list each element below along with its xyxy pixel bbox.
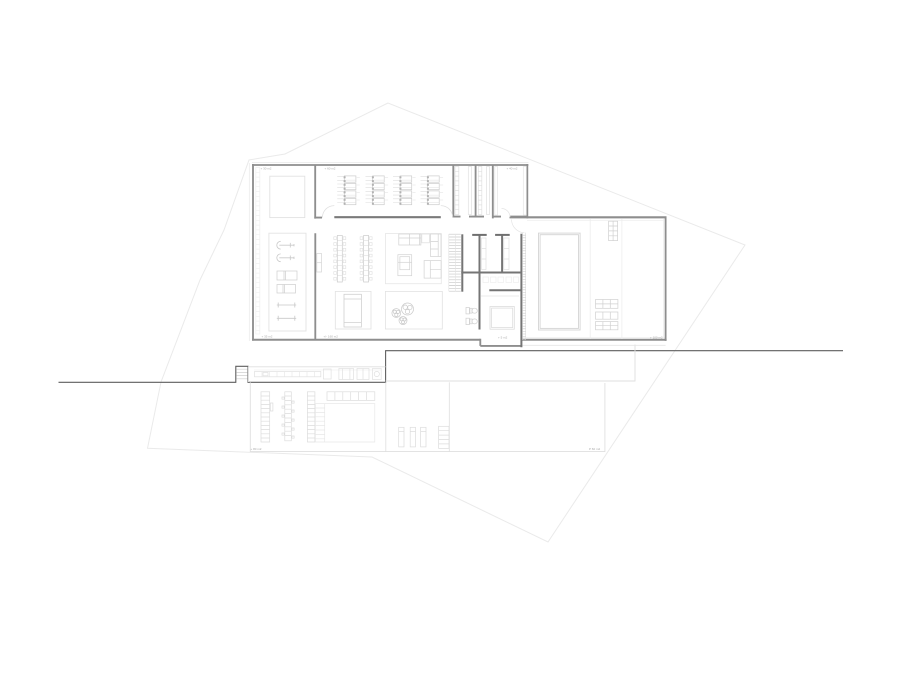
svg-text:P 60 m2: P 60 m2 (589, 447, 600, 451)
svg-text:+ 60 m2: + 60 m2 (325, 167, 336, 171)
svg-text:+ 30 m2: + 30 m2 (261, 167, 272, 171)
svg-text:+ 80 m2: + 80 m2 (251, 447, 262, 451)
svg-text:+/- 160 m2: +/- 160 m2 (324, 334, 339, 338)
svg-text:+ 5 m2: + 5 m2 (498, 336, 508, 340)
svg-text:+ 40 m2: + 40 m2 (507, 167, 518, 171)
svg-text:+ 100 m2: + 100 m2 (650, 335, 663, 339)
svg-text:+ 35 m2: + 35 m2 (262, 334, 273, 338)
